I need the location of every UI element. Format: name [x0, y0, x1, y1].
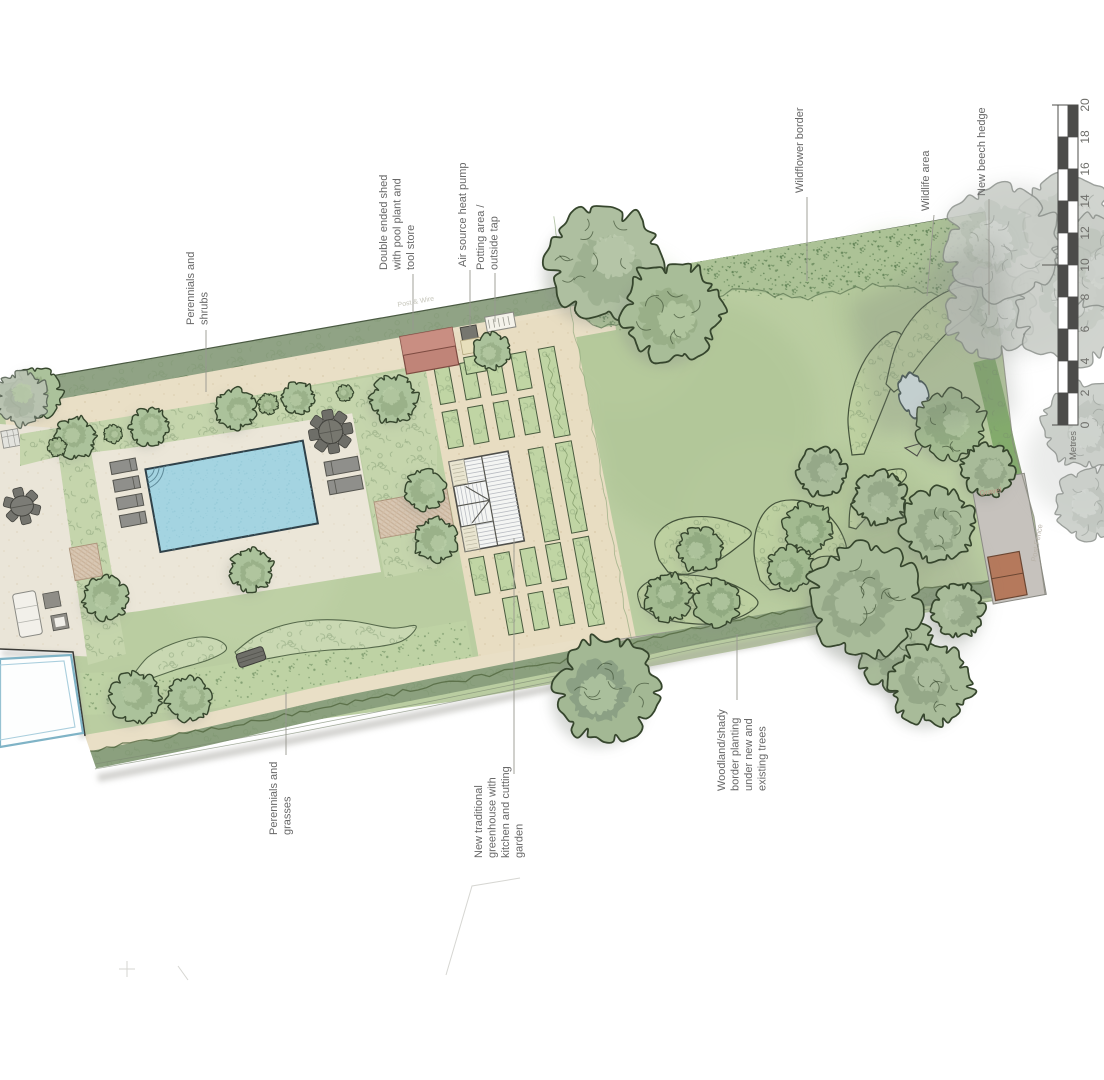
svg-text:20: 20 [1078, 98, 1092, 112]
svg-text:existing trees: existing trees [757, 726, 769, 791]
svg-text:under new and: under new and [743, 718, 755, 791]
svg-text:14: 14 [1078, 194, 1092, 208]
svg-text:shrubs: shrubs [199, 291, 211, 325]
svg-text:Woodland/shady: Woodland/shady [716, 709, 728, 791]
svg-text:border planting: border planting [730, 718, 742, 791]
svg-text:Air source heat pump: Air source heat pump [457, 162, 469, 267]
svg-text:grasses: grasses [282, 796, 294, 835]
svg-text:with pool plant and: with pool plant and [392, 178, 404, 271]
svg-text:16: 16 [1078, 162, 1092, 176]
svg-text:Potting area /: Potting area / [475, 204, 487, 270]
svg-text:4: 4 [1078, 357, 1092, 364]
svg-text:6: 6 [1078, 325, 1092, 332]
svg-text:tool store: tool store [405, 225, 417, 270]
svg-text:Wildflower border: Wildflower border [794, 107, 806, 193]
svg-text:Perennials and: Perennials and [268, 762, 280, 835]
svg-text:outside tap: outside tap [489, 216, 501, 270]
svg-text:Perennials and: Perennials and [185, 252, 197, 325]
svg-text:New beech hedge: New beech hedge [976, 107, 988, 196]
svg-text:Double ended shed: Double ended shed [378, 175, 390, 270]
svg-text:10: 10 [1078, 258, 1092, 272]
svg-text:0: 0 [1078, 421, 1092, 428]
svg-text:New traditional: New traditional [473, 785, 485, 858]
svg-text:12: 12 [1078, 226, 1092, 240]
svg-text:Wildlife area: Wildlife area [920, 150, 932, 211]
svg-text:Metres: Metres [1068, 431, 1079, 460]
svg-text:2: 2 [1078, 389, 1092, 396]
svg-text:8: 8 [1078, 293, 1092, 300]
svg-text:greenhouse with: greenhouse with [487, 777, 499, 858]
svg-text:18: 18 [1078, 130, 1092, 144]
svg-text:garden: garden [514, 824, 526, 858]
svg-text:kitchen and cutting: kitchen and cutting [500, 766, 512, 858]
